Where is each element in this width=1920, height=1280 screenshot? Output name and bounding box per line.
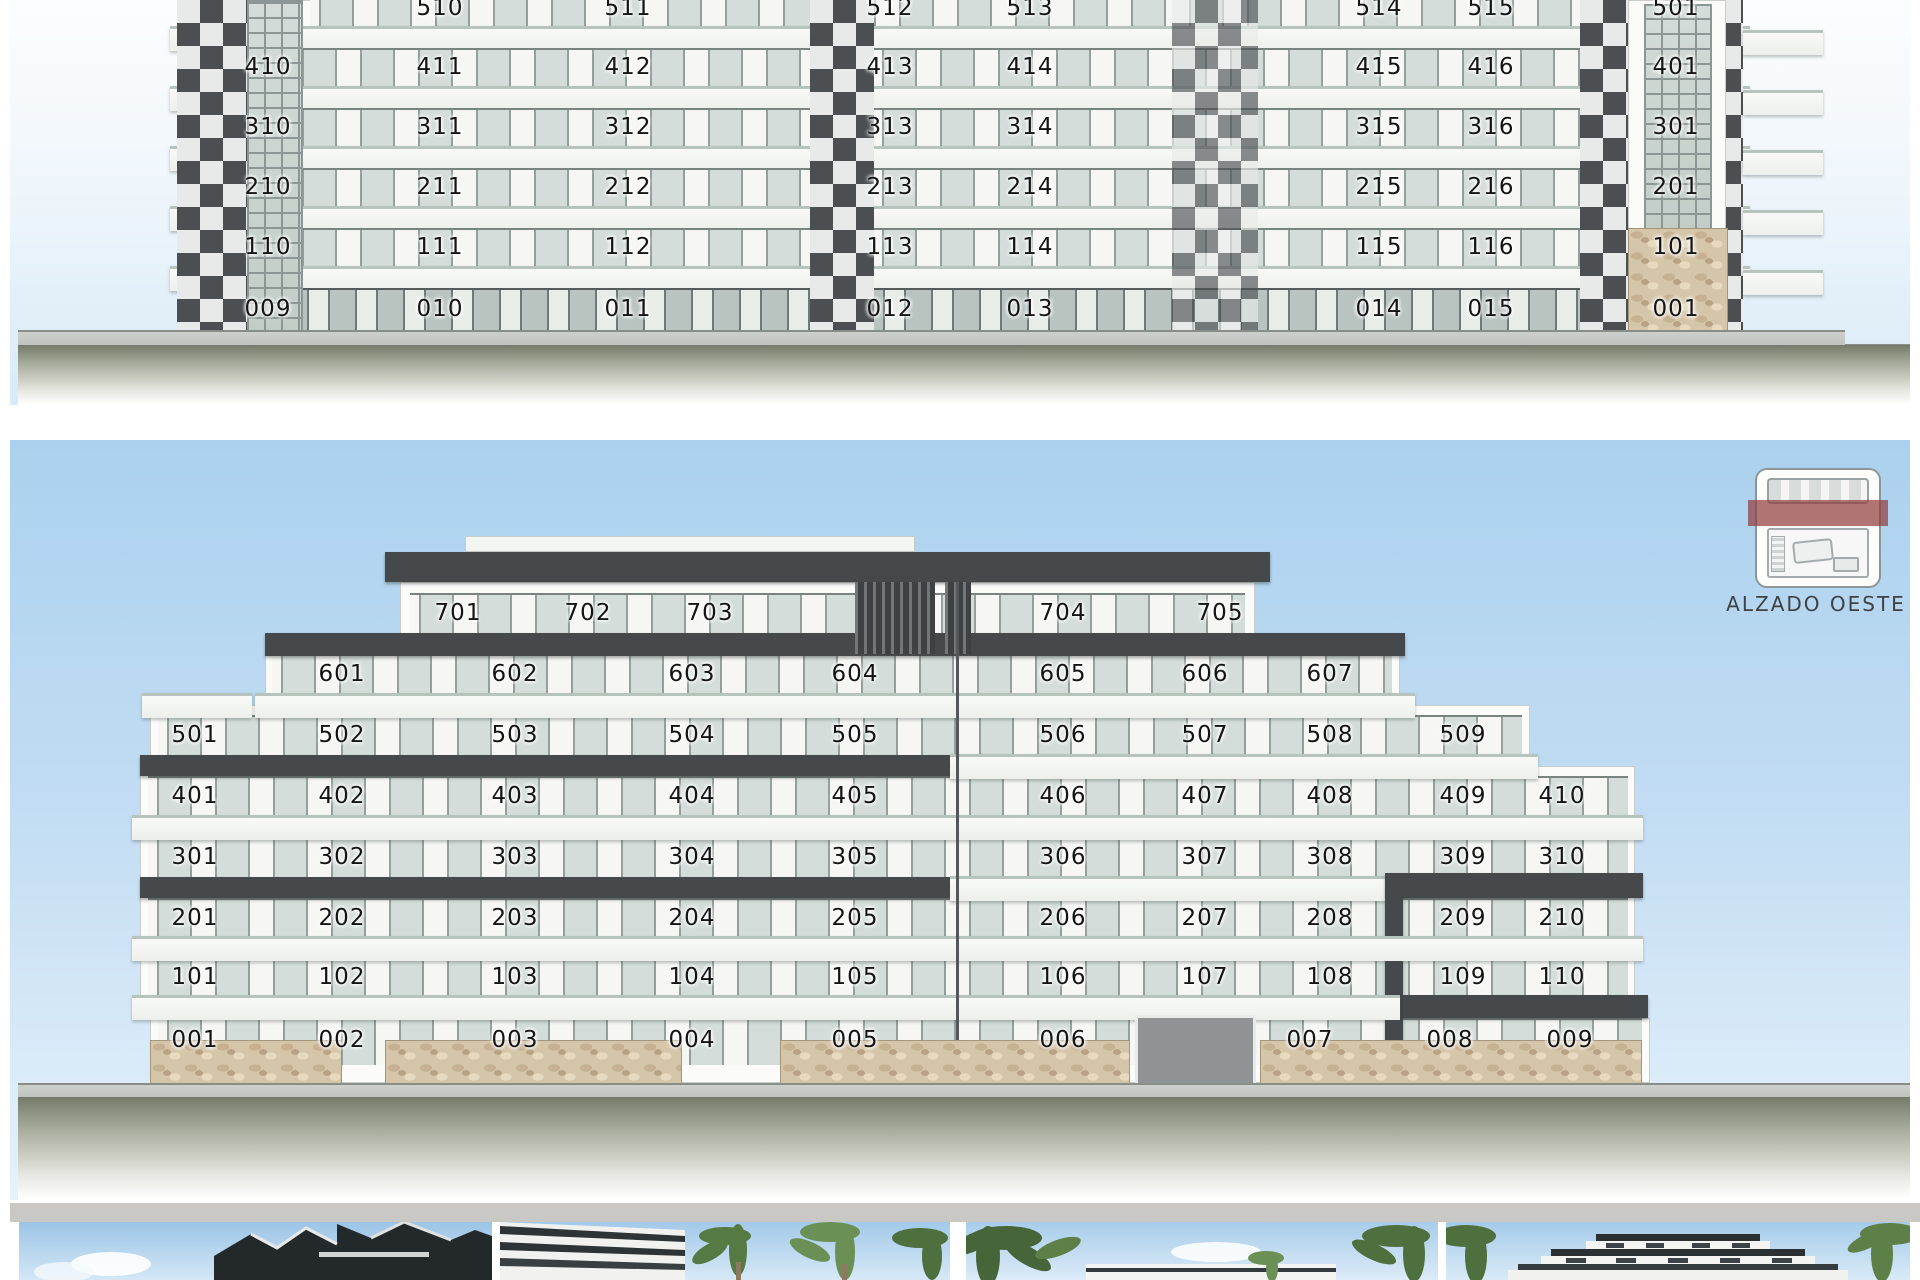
- window-strip: [148, 957, 1628, 999]
- render-side-view[interactable]: [500, 1222, 950, 1280]
- unit-label: 008: [1427, 1020, 1474, 1060]
- unit-label: 013: [1007, 290, 1054, 328]
- unit-label: 601: [319, 654, 366, 694]
- unit-label: 410: [245, 48, 292, 86]
- unit-label: 508: [1307, 715, 1354, 755]
- unit-label: 507: [1182, 715, 1229, 755]
- plan-car: [1833, 557, 1859, 572]
- unit-label: 211: [417, 168, 464, 206]
- unit-label: 703: [687, 593, 734, 633]
- dark-band-right: [1385, 873, 1643, 898]
- unit-label: 003: [492, 1020, 539, 1060]
- unit-label: 012: [867, 290, 914, 328]
- below-grade: [18, 345, 1910, 405]
- unit-label: 302: [319, 837, 366, 877]
- unit-label: 403: [492, 776, 539, 816]
- unit-label: 204: [669, 898, 716, 938]
- unit-label: 305: [832, 837, 879, 877]
- unit-label: 309: [1440, 837, 1487, 877]
- unit-label: 001: [1653, 290, 1700, 328]
- dark-band-0f: [1403, 995, 1648, 1018]
- left-stair-tower: [177, 0, 247, 332]
- unit-label: 113: [867, 228, 914, 266]
- unit-label: 210: [1539, 898, 1586, 938]
- unit-label: 607: [1307, 654, 1354, 694]
- unit-label: 515: [1468, 0, 1515, 27]
- unit-label: 306: [1040, 837, 1087, 877]
- unit-label: 511: [605, 0, 652, 27]
- unit-label: 103: [492, 957, 539, 997]
- unit-label: 209: [1440, 898, 1487, 938]
- unit-label: 705: [1197, 593, 1244, 633]
- unit-label: 213: [867, 168, 914, 206]
- unit-label: 202: [319, 898, 366, 938]
- render-corner-view[interactable]: [19, 1222, 492, 1280]
- unit-label: 002: [319, 1020, 366, 1060]
- unit-label: 205: [832, 898, 879, 938]
- unit-label: 503: [492, 715, 539, 755]
- side-balcony: [1743, 270, 1823, 295]
- unit-label: 313: [867, 108, 914, 146]
- unit-label: 410: [1539, 776, 1586, 816]
- unit-label: 310: [245, 108, 292, 146]
- step-band-6f: [265, 633, 1405, 656]
- unit-label: 214: [1007, 168, 1054, 206]
- elevation-title: ALZADO OESTE: [1726, 592, 1906, 616]
- render-garden-view[interactable]: [966, 1222, 1438, 1280]
- unit-label: 206: [1040, 898, 1087, 938]
- side-balcony: [1743, 30, 1823, 55]
- unit-label: 408: [1307, 776, 1354, 816]
- unit-label: 314: [1007, 108, 1054, 146]
- unit-label: 604: [832, 654, 879, 694]
- unit-label: 114: [1007, 228, 1054, 266]
- unit-label: 104: [669, 957, 716, 997]
- unit-label: 110: [245, 228, 292, 266]
- unit-label: 413: [867, 48, 914, 86]
- elevation-highlight-band: [1748, 500, 1888, 526]
- unit-label: 005: [832, 1020, 879, 1060]
- unit-label: 414: [1007, 48, 1054, 86]
- unit-label: 311: [417, 108, 464, 146]
- unit-label: 108: [1307, 957, 1354, 997]
- unit-label: 201: [172, 898, 219, 938]
- unit-label: 416: [1468, 48, 1515, 86]
- plan-hatch: [1771, 536, 1785, 572]
- thumbnail-strip-bar: [10, 1203, 1920, 1222]
- unit-label: 301: [172, 837, 219, 877]
- unit-label: 102: [319, 957, 366, 997]
- unit-label: 404: [669, 776, 716, 816]
- unit-label: 704: [1040, 593, 1087, 633]
- plan-pool: [1792, 538, 1834, 564]
- window-strip: [410, 593, 1245, 635]
- render-front-view[interactable]: [1446, 1222, 1910, 1280]
- unit-label: 512: [867, 0, 914, 27]
- unit-label: 509: [1440, 715, 1487, 755]
- unit-label: 501: [172, 715, 219, 755]
- unit-label: 502: [319, 715, 366, 755]
- unit-label: 312: [605, 108, 652, 146]
- garage-door: [1135, 1015, 1256, 1089]
- roof-parapet: [465, 536, 915, 552]
- site-key-icon: [1755, 468, 1881, 588]
- window-strip: [148, 776, 1628, 818]
- unit-label: 006: [1040, 1020, 1087, 1060]
- unit-label: 007: [1287, 1020, 1334, 1060]
- window-strip: [148, 898, 1628, 940]
- unit-label: 506: [1040, 715, 1087, 755]
- unit-label: 109: [1440, 957, 1487, 997]
- unit-label: 301: [1653, 108, 1700, 146]
- unit-label: 406: [1040, 776, 1087, 816]
- unit-label: 315: [1356, 108, 1403, 146]
- dark-band-left: [140, 755, 958, 776]
- elevation-drawing-top: 510 511 512 513 514 515 501 410 411 412 …: [10, 0, 1910, 405]
- unit-label: 001: [172, 1020, 219, 1060]
- unit-label: 407: [1182, 776, 1229, 816]
- unit-label: 208: [1307, 898, 1354, 938]
- unit-label: 701: [435, 593, 482, 633]
- unit-label: 105: [832, 957, 879, 997]
- unit-label: 415: [1356, 48, 1403, 86]
- louver-pier: [855, 582, 935, 654]
- unit-label: 110: [1539, 957, 1586, 997]
- unit-label: 401: [172, 776, 219, 816]
- unit-label: 101: [1653, 228, 1700, 266]
- unit-label: 210: [245, 168, 292, 206]
- unit-label: 009: [245, 290, 292, 328]
- unit-label: 501: [1653, 0, 1700, 27]
- plan-outline: [1767, 528, 1869, 578]
- expansion-joint: [956, 582, 959, 1083]
- unit-label: 207: [1182, 898, 1229, 938]
- unit-label: 014: [1356, 290, 1403, 328]
- unit-label: 215: [1356, 168, 1403, 206]
- unit-label: 212: [605, 168, 652, 206]
- unit-label: 303: [492, 837, 539, 877]
- unit-label: 112: [605, 228, 652, 266]
- below-grade: [18, 1097, 1910, 1200]
- side-balcony: [1743, 90, 1823, 115]
- unit-label: 606: [1182, 654, 1229, 694]
- unit-label: 504: [669, 715, 716, 755]
- unit-label: 514: [1356, 0, 1403, 27]
- unit-label: 004: [669, 1020, 716, 1060]
- unit-label: 115: [1356, 228, 1403, 266]
- unit-label: 101: [172, 957, 219, 997]
- unit-label: 505: [832, 715, 879, 755]
- unit-label: 111: [417, 228, 464, 266]
- unit-label: 409: [1440, 776, 1487, 816]
- unit-label: 106: [1040, 957, 1087, 997]
- elevation-drawing-west: ALZADO OESTE 701 702 703 704 705 601 602…: [10, 440, 1910, 1200]
- unit-label: 201: [1653, 168, 1700, 206]
- unit-label: 216: [1468, 168, 1515, 206]
- unit-label: 316: [1468, 108, 1515, 146]
- core-a: [810, 0, 874, 332]
- unit-label: 310: [1539, 837, 1586, 877]
- unit-label: 009: [1547, 1020, 1594, 1060]
- unit-label: 401: [1653, 48, 1700, 86]
- unit-label: 411: [417, 48, 464, 86]
- plan-sheet: 510 511 512 513 514 515 501 410 411 412 …: [0, 0, 1920, 1280]
- unit-label: 412: [605, 48, 652, 86]
- unit-label: 010: [417, 290, 464, 328]
- dark-band-left: [140, 877, 958, 898]
- core-b: [1172, 0, 1258, 332]
- unit-label: 203: [492, 898, 539, 938]
- unit-label: 702: [565, 593, 612, 633]
- unit-label: 107: [1182, 957, 1229, 997]
- unit-label: 510: [417, 0, 464, 27]
- unit-label: 402: [319, 776, 366, 816]
- unit-label: 015: [1468, 290, 1515, 328]
- unit-label: 603: [669, 654, 716, 694]
- unit-label: 308: [1307, 837, 1354, 877]
- unit-label: 011: [605, 290, 652, 328]
- unit-label: 307: [1182, 837, 1229, 877]
- unit-label: 405: [832, 776, 879, 816]
- side-balcony: [1743, 150, 1823, 175]
- unit-label: 116: [1468, 228, 1515, 266]
- unit-label: 304: [669, 837, 716, 877]
- unit-label: 605: [1040, 654, 1087, 694]
- unit-label: 513: [1007, 0, 1054, 27]
- roof-band: [385, 552, 1270, 582]
- unit-label: 602: [492, 654, 539, 694]
- side-balcony: [1743, 210, 1823, 235]
